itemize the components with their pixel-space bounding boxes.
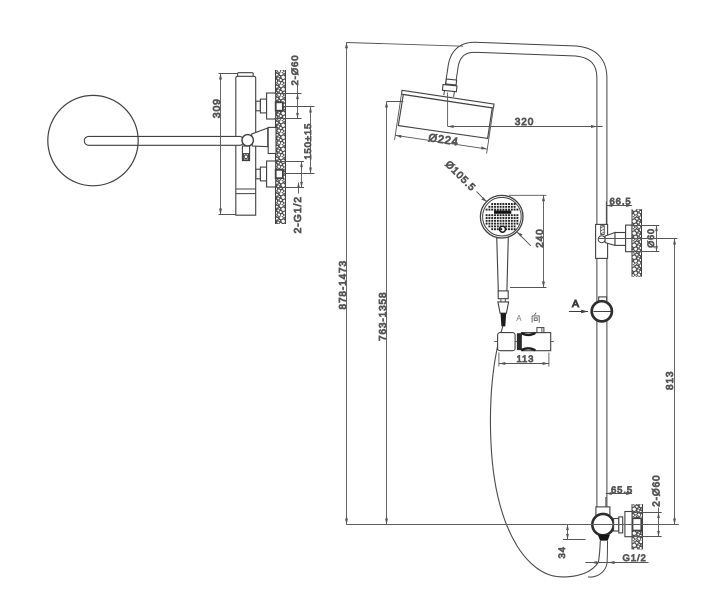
svg-text:A: A (572, 298, 580, 310)
svg-text:240: 240 (535, 228, 546, 247)
svg-text:Ø105.5: Ø105.5 (443, 159, 478, 194)
svg-text:2-Ø60: 2-Ø60 (651, 475, 662, 507)
svg-text:Ø224: Ø224 (428, 132, 460, 148)
svg-text:65.5: 65.5 (611, 485, 633, 496)
svg-text:763-1358: 763-1358 (378, 292, 389, 341)
svg-text:A: A (516, 314, 522, 323)
svg-text:813: 813 (665, 371, 676, 390)
svg-text:2-Ø60: 2-Ø60 (290, 55, 301, 86)
svg-text:34: 34 (557, 546, 568, 558)
svg-text:Ø60: Ø60 (646, 228, 656, 248)
svg-text:878-1473: 878-1473 (338, 260, 349, 309)
svg-text:150±15: 150±15 (303, 123, 314, 160)
svg-text:320: 320 (515, 117, 534, 128)
svg-text:G1/2: G1/2 (623, 553, 647, 564)
svg-text:66.5: 66.5 (610, 196, 632, 207)
svg-text:309: 309 (211, 98, 223, 118)
svg-text:2-G1/2: 2-G1/2 (292, 196, 304, 234)
svg-text:113: 113 (517, 354, 535, 365)
